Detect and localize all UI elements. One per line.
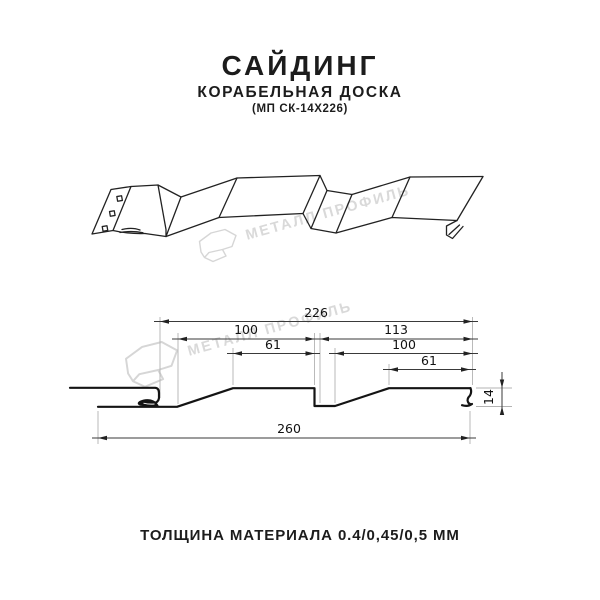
- dim-label-14: 14: [481, 389, 496, 405]
- dim-label-226: 226: [304, 305, 328, 320]
- dim-label-260: 260: [277, 421, 301, 436]
- dimension-arrows: [98, 319, 504, 440]
- spec-sheet-page: САЙДИНГ КОРАБЕЛЬНАЯ ДОСКА (МП СК-14Х226)…: [0, 0, 600, 600]
- cross-section-view: 226 100 113 61 100 61 260 14: [70, 305, 512, 444]
- dim-label-100-right: 100: [392, 337, 416, 352]
- dimension-labels: 226 100 113 61 100 61 260 14: [234, 305, 496, 436]
- thickness-note: ТОЛЩИНА МАТЕРИАЛА 0.4/0,45/0,5 ММ: [0, 527, 600, 544]
- dim-label-61-right: 61: [421, 353, 437, 368]
- dim-label-100-left: 100: [234, 322, 258, 337]
- mp-logo-icon: [200, 230, 237, 262]
- dim-label-113: 113: [384, 322, 408, 337]
- dim-label-61-left: 61: [265, 337, 281, 352]
- siding-3d-view: [92, 176, 483, 239]
- technical-drawing: 226 100 113 61 100 61 260 14: [0, 0, 600, 600]
- mp-logo-icon: [126, 342, 177, 387]
